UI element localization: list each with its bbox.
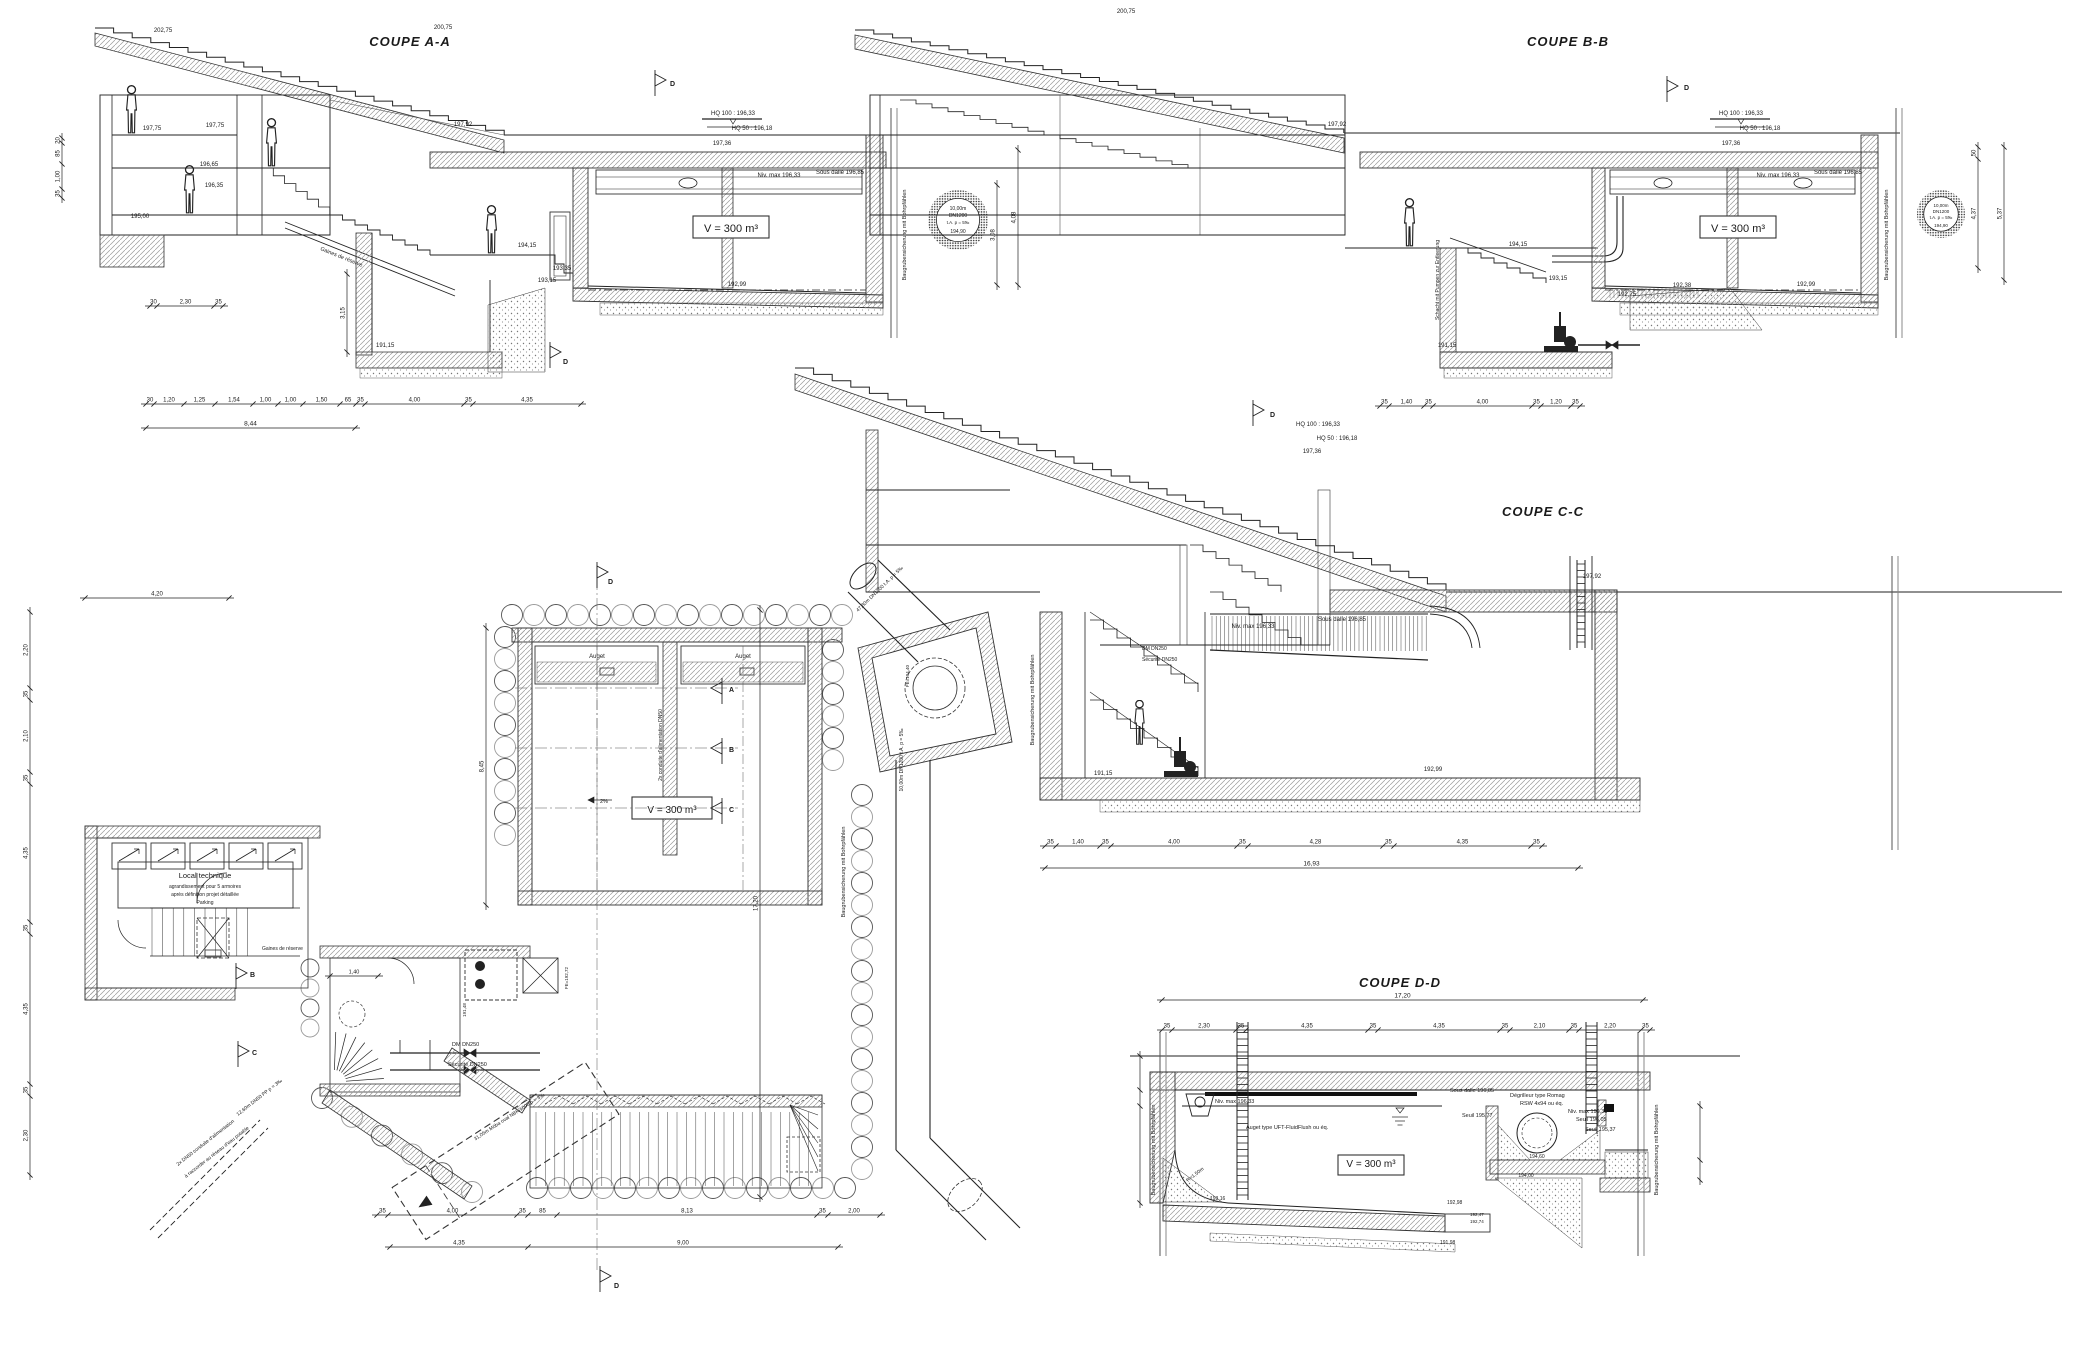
pile-circle	[852, 917, 873, 938]
dim-label: 4,35	[453, 1241, 465, 1247]
section-flag	[655, 74, 666, 86]
level-hq100: HQ 100 : 196,33	[1719, 111, 1764, 117]
stairs	[262, 168, 330, 215]
level-197-92: 197,92	[1583, 574, 1602, 580]
degrilleur-drum-inner	[1522, 1118, 1552, 1148]
section-flag-letter: D	[670, 81, 675, 88]
dim-label: 2,30	[24, 1129, 30, 1141]
cad-path	[730, 119, 736, 124]
pipe-down-label: 10,00m DN1200 t.A. p = 5‰	[899, 729, 905, 792]
level-195-00: 195,00	[131, 214, 150, 220]
pile-circle	[495, 715, 516, 736]
footing	[100, 235, 164, 267]
person-figure	[487, 206, 497, 253]
section-marker-a: A	[729, 687, 734, 694]
dim-label: 35	[519, 1209, 526, 1215]
pile-circle	[744, 605, 765, 626]
dim-label: 4,28	[1310, 840, 1322, 846]
pile-circle	[852, 1005, 873, 1026]
sous-dalle-label: Sous dalle 196,85	[816, 170, 865, 176]
dim-label: 35	[24, 1086, 30, 1093]
cabinet-symbol	[190, 843, 224, 869]
level-193-15: 193,15	[1549, 276, 1568, 282]
tank-wall	[1592, 168, 1605, 288]
pile-circle	[835, 1178, 856, 1199]
pipe-stamp-slope: t.A. p = 5‰	[1930, 215, 1953, 220]
dim-label: 50	[1972, 149, 1978, 156]
volume-label: V = 300 m³	[1346, 1159, 1396, 1170]
dim-label: 4,00	[1168, 840, 1180, 846]
tank-wall	[573, 168, 588, 288]
stairs	[1455, 248, 1546, 283]
cad-line	[341, 1043, 364, 1073]
plan-geometry: 8,451,40354,0035858,13352,004,359,002,20…	[24, 558, 1021, 1292]
coupe-aa-geometry: 3,084,083,15301,201,251,541,001,001,5065…	[56, 28, 1021, 431]
level-193-35: 193,35	[553, 266, 572, 272]
dim-label: 2,30	[1198, 1024, 1210, 1030]
chamber-slab	[1440, 352, 1612, 368]
wall	[320, 1084, 460, 1096]
level-192-99: 192,99	[1797, 282, 1816, 288]
top-slab	[1150, 1072, 1650, 1090]
baugruben-label: Baugrubensicherung mit Bohrpfählen	[1030, 655, 1036, 746]
local-technique-line2: agrandissement pour 5 armoires	[169, 884, 241, 890]
cad-path	[1552, 196, 1617, 256]
pile-circle	[301, 959, 319, 977]
dim-label: 4,00	[409, 398, 421, 404]
level-191-15: 191,15	[1094, 771, 1113, 777]
cad-line	[150, 1120, 260, 1230]
level-192-38: 192,38	[1673, 283, 1692, 289]
dim-label: 30	[150, 300, 157, 306]
dim-label: 2,20	[1604, 1024, 1616, 1030]
cad-rect	[537, 662, 656, 682]
section-marker-c: C	[729, 807, 734, 814]
tank-wall	[518, 628, 532, 905]
pipe-inlet-label: 47,80m DN1200 t.A. p = 5‰	[855, 565, 904, 613]
drawing-sheet: 3,084,083,15301,201,251,541,001,001,5065…	[0, 0, 2099, 1367]
stairs	[795, 368, 1446, 590]
dim-label: 35	[819, 1209, 826, 1215]
bottom-slab	[1163, 1205, 1445, 1232]
vehicle-arrow	[416, 1196, 432, 1211]
pump-symbol	[475, 979, 485, 989]
cad-path	[118, 920, 146, 948]
tank-roof	[1360, 152, 1878, 168]
level-197-75: 197,75	[143, 126, 162, 132]
cad-line	[878, 560, 950, 630]
auget-type-label: Auget type UFT-FluidFlush ou éq.	[1246, 1125, 1329, 1131]
stairs	[1044, 135, 1188, 168]
pile-circle	[495, 693, 516, 714]
tank-divider	[663, 642, 677, 855]
dim-label: 4,00	[1477, 400, 1489, 406]
gravel-wedge	[1560, 1130, 1600, 1160]
dim-label: 4,35	[1433, 1024, 1445, 1030]
pile-circle	[852, 1093, 873, 1114]
cad-line	[158, 1128, 268, 1238]
level-197-36: 197,36	[713, 141, 732, 147]
auget-label: Auget	[735, 654, 751, 660]
tank-wall	[1595, 590, 1617, 800]
level-191-15: 191,15	[376, 343, 395, 349]
dm-dn250-label: DM DN250	[1142, 646, 1167, 652]
volume-label: V = 300 m³	[1711, 223, 1765, 235]
ramp-wall	[322, 1090, 472, 1199]
section-marker-d-bottom: D	[614, 1283, 619, 1290]
cad-line	[790, 1105, 818, 1129]
section-flag	[1667, 80, 1678, 92]
dim-label: 2,00	[848, 1209, 860, 1215]
dim-label: 35	[24, 774, 30, 781]
level-hq100: HQ 100 : 196,33	[1296, 422, 1341, 428]
dim-label: 30	[147, 398, 154, 404]
dim-label: 85	[56, 150, 62, 157]
level-202-75: 202,75	[154, 28, 173, 34]
level-197-75: 197,75	[206, 123, 225, 129]
tank-wall	[808, 628, 822, 905]
cad-line	[346, 1079, 384, 1082]
level-192-75: 192,75	[1618, 292, 1637, 298]
radius-label: R=1,50m	[1186, 1166, 1206, 1183]
cad-line	[1210, 650, 1428, 660]
dim-label: 35	[1164, 1024, 1171, 1030]
sous-dalle-label: Sous dalle 196,85	[1814, 170, 1863, 176]
cad-canvas: 3,084,083,15301,201,251,541,001,001,5065…	[0, 0, 2099, 1367]
dim-label: 35	[465, 398, 472, 404]
level-192-99: 192,99	[728, 282, 747, 288]
pile-circle	[590, 605, 611, 626]
dim-label: 35	[1239, 840, 1246, 846]
pile-circle	[502, 605, 523, 626]
niv-max-label: Niv. max 196,33	[1568, 1109, 1607, 1115]
dim-label: 35	[1102, 840, 1109, 846]
wall	[320, 946, 530, 958]
dim-label: 35	[1381, 400, 1388, 406]
pile-circle	[301, 999, 319, 1017]
fe-194-40-label: FE=194,40	[905, 664, 910, 687]
coupe-bb-geometry: 504,375,37351,40354,00351,2035	[855, 30, 2007, 409]
pile-circle	[823, 684, 844, 705]
dim-label: 1,50	[316, 398, 328, 404]
cad-line	[197, 849, 217, 861]
pile-circle	[766, 605, 787, 626]
cad-line	[345, 1059, 379, 1077]
dim-label: 35	[1572, 400, 1579, 406]
person-figure	[185, 166, 195, 213]
pile-circle	[823, 640, 844, 661]
level-hq50: HQ 50 : 196,18	[1317, 436, 1358, 442]
tank-wall	[1040, 612, 1062, 800]
dim-label: 20	[56, 137, 62, 144]
tank-roof	[430, 152, 886, 168]
seuil-196-05: Seuil 196,05	[1576, 1117, 1607, 1123]
section-flag	[236, 967, 247, 979]
chamber-wall	[1440, 248, 1456, 352]
level-196-65: 196,65	[200, 162, 219, 168]
pile-circle	[823, 706, 844, 727]
section-title: COUPE A-A	[369, 34, 450, 49]
gravel-wedge	[488, 288, 545, 372]
dim-label: 1,00	[260, 398, 272, 404]
auget-label: Auget	[589, 654, 605, 660]
valve-symbol	[464, 1049, 476, 1057]
slope-2pct-label: 2%	[600, 799, 608, 805]
section-flag	[597, 566, 608, 578]
sous-dalle-label: Sous dalle 196,85	[1318, 617, 1367, 623]
level-hq100: HQ 100 : 196,33	[711, 111, 756, 117]
section-marker-d-top: D	[608, 579, 613, 586]
dim-label: 65	[345, 398, 352, 404]
pump-body	[1184, 761, 1196, 773]
dim-label: 35	[1533, 400, 1540, 406]
pipe-stamp-level: 194,90	[1934, 223, 1948, 228]
cad-line	[236, 849, 256, 861]
sump-circle	[339, 1001, 365, 1027]
niv-max-label: Niv. max 196,33	[758, 173, 802, 179]
dim-label: 17,20	[1394, 993, 1411, 1000]
chamber-wall	[356, 233, 372, 355]
pile-circle	[852, 1027, 873, 1048]
pile-circle	[852, 1115, 873, 1136]
stairs	[855, 30, 1344, 133]
dim-label: 4,35	[24, 847, 30, 859]
dim-label: 5,37	[1998, 207, 2004, 219]
dim-label: 4,35	[1301, 1024, 1313, 1030]
tank-wall	[1861, 135, 1878, 302]
wall	[85, 988, 235, 1000]
pile-circle	[546, 605, 567, 626]
dim-label: 1,20	[163, 398, 175, 404]
section-flag	[1253, 404, 1264, 416]
securite-dn250-label: Sécurité DN250	[1142, 657, 1178, 663]
person-figure	[1135, 700, 1144, 744]
cad-line	[896, 1150, 986, 1240]
pile-circle	[852, 983, 873, 1004]
level-197-36: 197,36	[1303, 449, 1322, 455]
chamber-slab	[1490, 1160, 1605, 1174]
tank-floor	[1040, 778, 1640, 800]
cad-line	[119, 849, 139, 861]
pile-circle	[722, 605, 743, 626]
dim-label: 35	[1370, 1024, 1377, 1030]
cad-rect	[1554, 326, 1566, 342]
pile-circle	[823, 662, 844, 683]
section-marker-b-left: B	[250, 972, 255, 979]
level-196-35: 196,35	[205, 183, 224, 189]
dim-label: 1,54	[228, 398, 240, 404]
outlet-oval	[941, 1172, 988, 1218]
outlet-slab	[1600, 1178, 1650, 1192]
cad-line	[790, 1105, 818, 1171]
tank-wall	[512, 628, 842, 642]
dim-label: 2,20	[24, 644, 30, 656]
cad-path	[588, 797, 594, 803]
pipe-stamp-slope: t.A. p = 5‰	[947, 220, 970, 225]
seuil-195-77: Seuil 195,77	[1462, 1113, 1493, 1119]
conduite-alimentation-label: 2x conduite d'alimentation DN50	[658, 709, 664, 781]
gravel	[1444, 368, 1612, 378]
person-figure	[267, 119, 277, 166]
pipe-stamp-level: 194,90	[950, 229, 966, 235]
pile-circle	[852, 873, 873, 894]
dim-label: 35	[56, 190, 62, 197]
alimentation-label-3: 12,60m DN50 PP p = 3‰	[236, 1078, 284, 1117]
pump-room	[330, 958, 460, 1092]
dim-label: 35	[1642, 1024, 1649, 1030]
pile-circle	[612, 605, 633, 626]
pile-circle	[495, 759, 516, 780]
dim-label: 35	[24, 690, 30, 697]
dim-label: 2,30	[180, 300, 192, 306]
pile-circle	[656, 605, 677, 626]
pile-circle	[568, 605, 589, 626]
dim-label: 1,25	[194, 398, 206, 404]
dim-label: 85	[539, 1209, 546, 1215]
cabinet-symbol	[268, 843, 302, 869]
section-flag-letter: D	[1270, 412, 1275, 419]
dim-label: 9,00	[677, 1241, 689, 1247]
wall	[85, 826, 320, 838]
pipe-stamp-dn: DN1200	[949, 213, 968, 219]
tank-wall	[518, 891, 822, 905]
dim-label: 35	[1571, 1024, 1578, 1030]
cad-path	[1738, 119, 1744, 124]
pile-circle	[524, 605, 545, 626]
ramp-wall	[444, 1048, 530, 1113]
section-title: COUPE C-C	[1502, 504, 1584, 519]
wall	[530, 1095, 822, 1107]
pile-circle	[495, 649, 516, 670]
cad-path	[388, 958, 414, 984]
baugruben-label: Baugrubensicherung mit Bohrpfählen	[841, 827, 847, 918]
cad-line	[1450, 238, 1546, 272]
pile-circle	[301, 1019, 319, 1037]
corner-box	[787, 1137, 820, 1172]
level-194-00: 194,00	[1518, 1173, 1534, 1179]
pipe-stamp-length: 10,00m	[1933, 203, 1948, 208]
level-193-15: 193,15	[538, 278, 557, 284]
dim-label: 1,40	[1072, 840, 1084, 846]
pile-circle	[852, 1071, 873, 1092]
gravel	[600, 303, 883, 315]
dim-label: 35	[1502, 1024, 1509, 1030]
level-197-36: 197,36	[1722, 141, 1741, 147]
gravel-slope	[1495, 1178, 1582, 1248]
pile-circle	[852, 807, 873, 828]
dim-label: 35	[357, 398, 364, 404]
pile-circle	[852, 851, 873, 872]
pile-circle	[810, 605, 831, 626]
sous-dalle-label: Sous dalle 196,85	[1450, 1088, 1494, 1094]
dm-dn250-label: DM DN250	[452, 1042, 479, 1048]
securite-dn250-label: Sécurité DN250	[448, 1062, 487, 1068]
dim-label: 4,20	[151, 592, 163, 598]
dim-label: 1,20	[1550, 400, 1562, 406]
dim-label: 35	[215, 300, 222, 306]
dim-label: 35	[1047, 840, 1054, 846]
cad-path	[1396, 1108, 1404, 1113]
float-switch	[1654, 178, 1672, 188]
level-191-98: 191,98	[1440, 1240, 1456, 1246]
level-191-15: 191,15	[1438, 343, 1457, 349]
level-194-15: 194,15	[1509, 242, 1528, 248]
coupe-dd-geometry: 352,30354,35354,35352,10352,203517,20	[1130, 993, 1740, 1257]
volume-label: V = 300 m³	[647, 805, 697, 816]
tank-roof	[1330, 590, 1617, 612]
niv-max-label: Niv. max 196,33	[1757, 173, 1801, 179]
pipe-stamp-dn: DN1200	[1933, 209, 1950, 214]
dim-label: 4,35	[24, 1003, 30, 1015]
pile-circle	[678, 605, 699, 626]
dim-label: 35	[379, 1209, 386, 1215]
local-technique-line4: Parking	[197, 900, 214, 906]
level-200-75: 200,75	[434, 25, 453, 31]
tank-wall	[866, 135, 883, 302]
cad-rect	[1174, 751, 1186, 767]
section-flag	[550, 346, 561, 358]
section-flag-letter: D	[563, 359, 568, 366]
level-197-92: 197,92	[1328, 122, 1347, 128]
pile-circle	[852, 1137, 873, 1158]
cad-path	[1430, 614, 1472, 648]
float-switch	[679, 178, 697, 188]
pile-circle	[495, 737, 516, 758]
dim-label: 3,15	[341, 307, 347, 319]
fe-192-72-label: FE=192,72	[564, 966, 569, 989]
dim-label: 1,00	[56, 170, 62, 182]
pipe-stamp-length: 10,00m	[950, 206, 967, 212]
cad-line	[790, 1105, 818, 1157]
cabinet-symbol	[151, 843, 185, 869]
stairs	[1210, 592, 1301, 645]
dim-label: 35	[1425, 400, 1432, 406]
dim-label: 35	[1238, 1024, 1245, 1030]
stairs	[1190, 545, 1281, 592]
wall	[85, 826, 97, 1000]
cad-line	[275, 849, 295, 861]
level-197-92: 197,92	[454, 122, 473, 128]
level-192-98: 192,98	[1447, 1200, 1463, 1206]
dim-label: 1,40	[1401, 400, 1413, 406]
cad-line	[334, 1032, 335, 1070]
local-technique-title: Local technique	[179, 871, 232, 880]
pile-circle	[823, 750, 844, 771]
pile-circle	[495, 825, 516, 846]
cad-path	[1552, 196, 1623, 262]
volume-label: V = 300 m³	[704, 223, 758, 235]
float-switch	[1794, 178, 1812, 188]
cad-line	[337, 1033, 346, 1070]
cad-line	[346, 1068, 383, 1078]
section-flag	[238, 1045, 249, 1057]
cad-line	[930, 1138, 1020, 1228]
baugruben-label: Baugrubensicherung mit Bohrpfählen	[1654, 1105, 1660, 1196]
dim-label: 35	[1533, 840, 1540, 846]
level-194-60: 194,60	[1529, 1154, 1545, 1160]
dim-label: 8,45	[480, 760, 486, 772]
dim-label: 4,00	[447, 1209, 459, 1215]
pump-body	[1564, 336, 1576, 348]
gravel	[360, 368, 502, 378]
baugruben-label: Baugrubensicherung mit Bohrpfählen	[1884, 190, 1890, 281]
pile-circle	[788, 605, 809, 626]
level-194-15: 194,15	[518, 243, 537, 249]
niv-max-label: Niv. max 196,33	[1232, 624, 1276, 630]
coupe-dd-labels: COUPE D-D Sous dalle 196,85 Dégrilleur t…	[1151, 975, 1660, 1246]
stairs	[900, 100, 1044, 135]
degrilleur-drum	[1517, 1113, 1557, 1153]
